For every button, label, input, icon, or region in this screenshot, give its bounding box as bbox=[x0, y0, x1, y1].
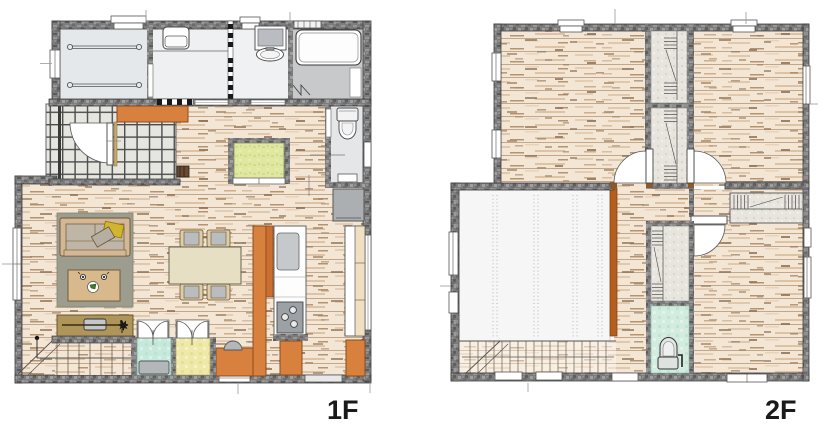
svg-text:1F: 1F bbox=[327, 395, 359, 425]
svg-text:2F: 2F bbox=[765, 395, 797, 425]
